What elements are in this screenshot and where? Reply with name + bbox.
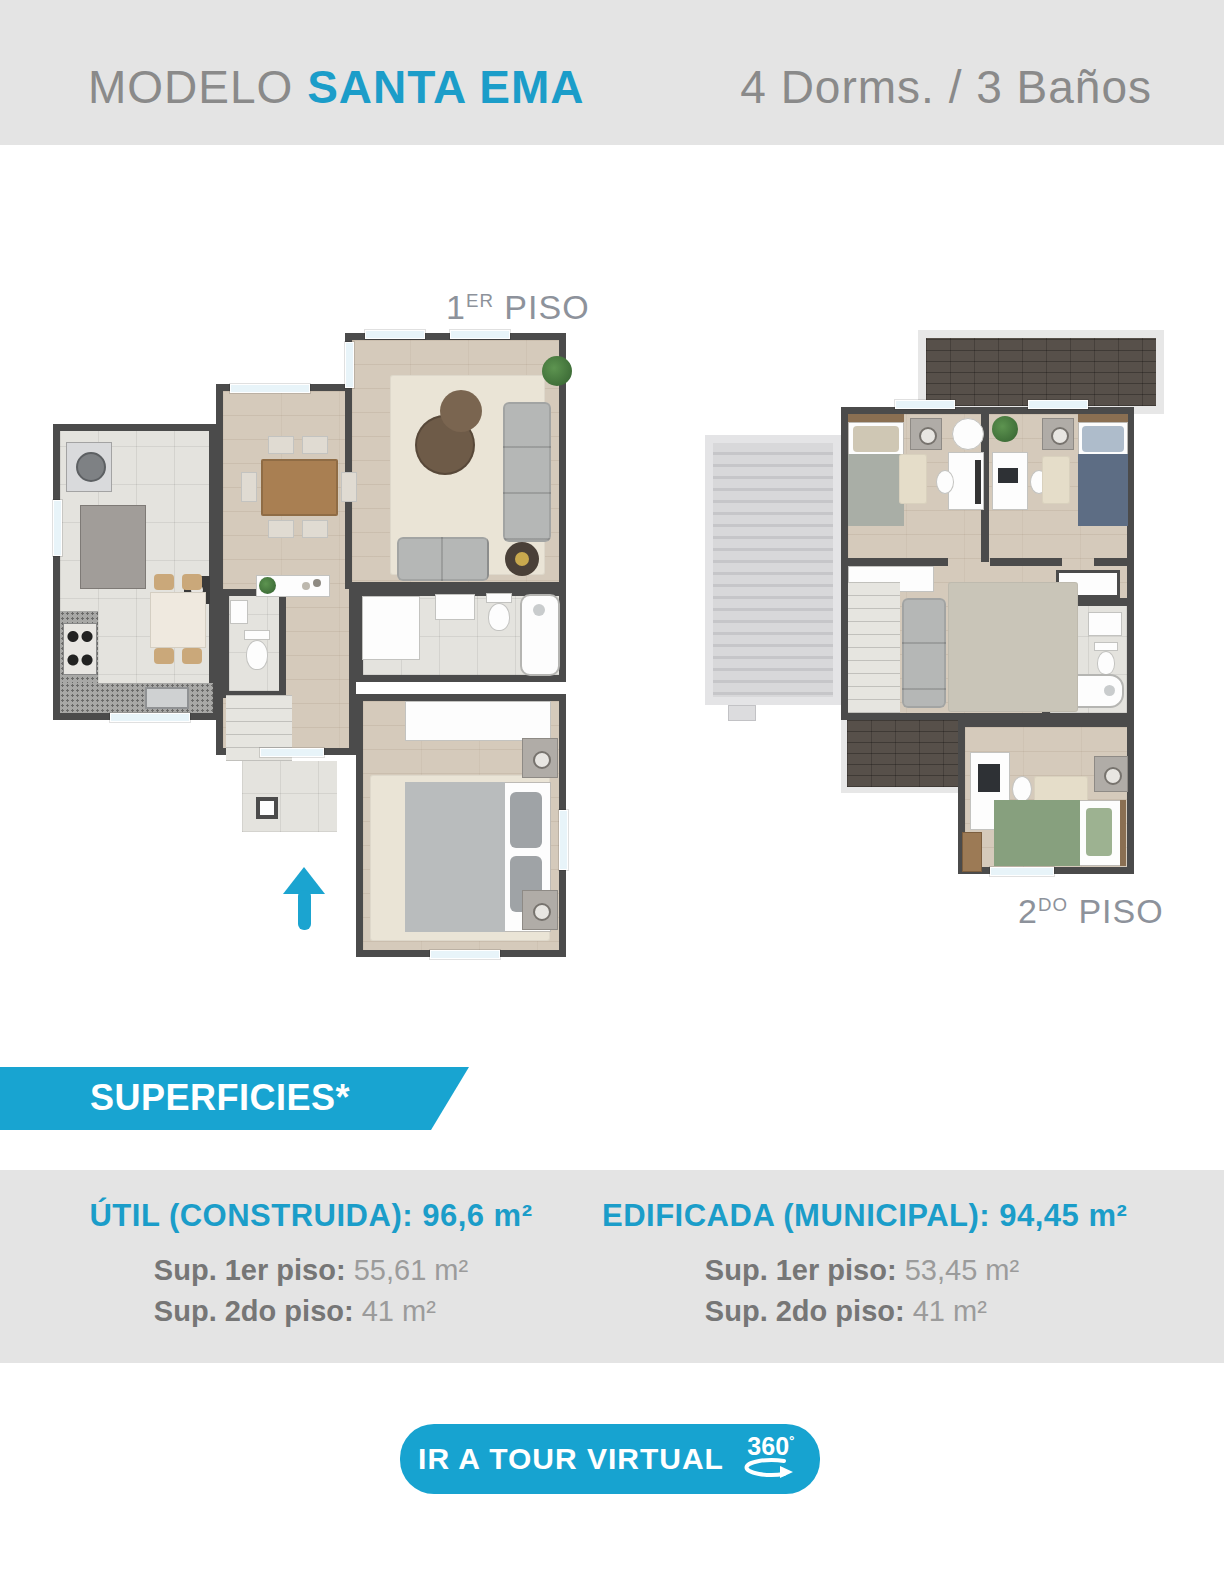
bathroom-sink (1088, 612, 1122, 636)
kitchen-chair (154, 648, 174, 664)
deck-foot (728, 705, 756, 721)
kitchen-sink (145, 687, 189, 709)
row-value: 41 m² (362, 1295, 436, 1327)
superficies-title: SUPERFICIES* (0, 1077, 440, 1119)
util-column: ÚTIL (CONSTRUIDA): 96,6 m² Sup. 1er piso… (60, 1198, 562, 1332)
monitor (975, 460, 981, 504)
doormat (256, 797, 278, 819)
laptop (978, 764, 1000, 792)
virtual-tour-label: IR A TOUR VIRTUAL (418, 1442, 724, 1476)
closet (362, 596, 420, 660)
dining-table (261, 459, 338, 516)
wardrobe (405, 701, 551, 741)
entrance-arrow-stem (298, 890, 311, 930)
surface-row: Sup. 2do piso: 41 m² (705, 1291, 1019, 1332)
row-value: 41 m² (913, 1295, 987, 1327)
dining-chair (302, 436, 328, 454)
window (110, 713, 190, 722)
rotation-arrow-icon (740, 1457, 802, 1479)
entry-door (260, 748, 324, 757)
roof-top (926, 338, 1156, 406)
header: MODELO SANTA EMA 4 Dorms. / 3 Baños (0, 0, 1224, 145)
surfaces-band: ÚTIL (CONSTRUIDA): 96,6 m² Sup. 1er piso… (0, 1170, 1224, 1363)
bedside-rug (899, 454, 927, 504)
desk-chair (936, 470, 954, 494)
tub-drain (1104, 685, 1115, 696)
toilet (488, 603, 510, 631)
tub-drain (533, 604, 545, 616)
window (990, 867, 1054, 876)
interior-wall (1094, 558, 1127, 566)
edificada-column: EDIFICADA (MUNICIPAL): 94,45 m² Sup. 1er… (602, 1198, 1122, 1332)
kitchen-chair (182, 574, 202, 590)
row-label: Sup. 2do piso: (705, 1295, 913, 1327)
window (895, 400, 955, 409)
surface-row: Sup. 1er piso: 53,45 m² (705, 1250, 1019, 1291)
virtual-tour-button[interactable]: IR A TOUR VIRTUAL 360° (400, 1424, 820, 1494)
bed-headboard (1120, 800, 1126, 866)
laptop (998, 468, 1018, 483)
small-plant (259, 577, 276, 594)
plant (542, 356, 572, 386)
nightstand (522, 890, 558, 930)
desk-chair (1012, 776, 1032, 802)
cup (313, 579, 321, 587)
plant (992, 416, 1018, 442)
row-value: 55,61 m² (354, 1254, 468, 1286)
page: MODELO SANTA EMA 4 Dorms. / 3 Baños 1ER … (0, 0, 1224, 1584)
small-sink (230, 600, 248, 624)
washer-drum (76, 452, 106, 482)
nightstand (910, 418, 942, 450)
dining-chair (241, 472, 257, 502)
three-seat-sofa (503, 402, 551, 542)
util-rows: Sup. 1er piso: 55,61 m² Sup. 2do piso: 4… (154, 1250, 468, 1332)
gold-decor (515, 552, 529, 566)
window (345, 342, 354, 388)
cup (302, 582, 310, 590)
floor-plan-2 (690, 330, 1168, 876)
bed-blanket (1078, 454, 1128, 526)
util-title: ÚTIL (CONSTRUIDA): 96,6 m² (60, 1198, 562, 1234)
dining-chair (268, 436, 294, 454)
round-chair (952, 418, 984, 450)
dining-chair (268, 520, 294, 538)
floor-plan-1 (50, 330, 570, 962)
hall-rug (948, 582, 1078, 712)
model-prefix: MODELO (88, 61, 307, 113)
row-label: Sup. 1er piso: (705, 1254, 905, 1286)
bookshelf (962, 832, 982, 872)
surface-row: Sup. 1er piso: 55,61 m² (154, 1250, 468, 1291)
bedside-rug (1042, 456, 1070, 504)
loveseat-sofa (397, 537, 489, 581)
kitchen-chair (154, 574, 174, 590)
bed-blanket (994, 800, 1080, 866)
dorms-banos-label: 4 Dorms. / 3 Baños (740, 60, 1152, 114)
dining-chair (302, 520, 328, 538)
toilet (246, 640, 268, 670)
roof-bottom-left (841, 720, 958, 793)
bed-blanket (848, 454, 904, 526)
bed-blanket (405, 782, 505, 932)
nightstand (522, 738, 558, 778)
bed-headboard (1078, 414, 1128, 422)
nightstand (1094, 756, 1128, 792)
interior-wall (990, 558, 1062, 566)
window (1028, 400, 1088, 409)
first-floor-label: 1ER PISO (446, 288, 590, 327)
fridge (80, 505, 146, 589)
window (53, 500, 62, 556)
360-rotation-icon: 360° (740, 1434, 802, 1479)
edificada-title: EDIFICADA (MUNICIPAL): 94,45 m² (602, 1198, 1122, 1234)
surface-row: Sup. 2do piso: 41 m² (154, 1291, 468, 1332)
bathroom-sink (435, 594, 475, 620)
terrace-deck (705, 435, 841, 705)
side-coffee-table (440, 390, 482, 432)
kitchen-table (150, 592, 206, 648)
superficies-banner: SUPERFICIES* (0, 1067, 469, 1130)
toilet (1097, 651, 1115, 675)
dining-chair (341, 472, 357, 502)
pillow (510, 792, 542, 848)
hall-sofa (902, 598, 946, 708)
interior-wall (848, 558, 948, 566)
second-floor-label: 2DO PISO (1018, 892, 1164, 931)
pillow (1086, 808, 1112, 856)
kitchen-counter-bottom (60, 683, 213, 713)
row-value: 53,45 m² (905, 1254, 1019, 1286)
pillow (1082, 426, 1124, 452)
toilet-tank (486, 593, 512, 603)
bed-headboard (848, 414, 904, 422)
window (450, 330, 510, 339)
kitchen-chair (182, 648, 202, 664)
model-name: SANTA EMA (307, 61, 584, 113)
stove (63, 623, 97, 675)
edificada-rows: Sup. 1er piso: 53,45 m² Sup. 2do piso: 4… (705, 1250, 1019, 1332)
window (365, 330, 425, 339)
row-label: Sup. 2do piso: (154, 1295, 362, 1327)
window (430, 950, 500, 959)
window (230, 384, 310, 393)
page-title: MODELO SANTA EMA (88, 60, 584, 114)
pillow (853, 426, 899, 452)
window (559, 810, 568, 870)
stairs-2 (848, 582, 900, 713)
nightstand (1042, 418, 1074, 450)
toilet-tank (244, 630, 270, 640)
toilet-tank (1094, 642, 1118, 651)
row-label: Sup. 1er piso: (154, 1254, 354, 1286)
